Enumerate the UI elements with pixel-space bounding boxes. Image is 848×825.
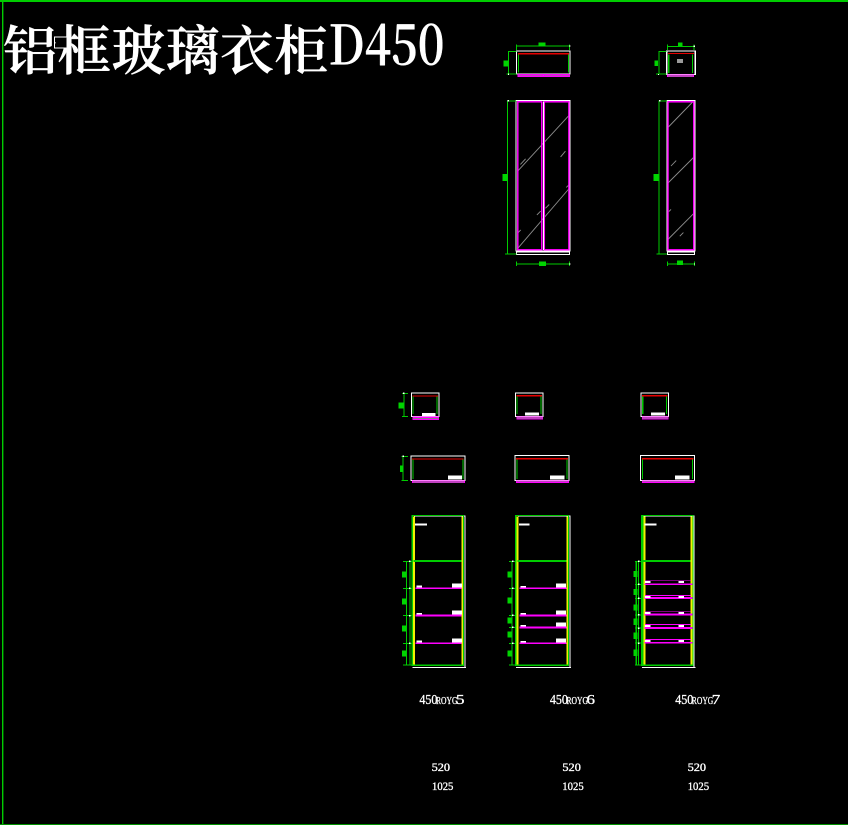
- svg-text:450: 450: [675, 692, 693, 707]
- svg-text:520: 520: [562, 762, 581, 774]
- svg-text:1025: 1025: [562, 781, 584, 793]
- svg-text:520: 520: [688, 762, 707, 774]
- svg-text:ROYG: ROYG: [692, 696, 714, 707]
- svg-text:5: 5: [456, 692, 465, 707]
- svg-text:1025: 1025: [688, 781, 710, 793]
- svg-text:450: 450: [419, 692, 437, 707]
- svg-text:6: 6: [587, 692, 596, 707]
- svg-text:ROYG: ROYG: [567, 696, 589, 707]
- svg-text:7: 7: [712, 692, 721, 707]
- svg-text:520: 520: [432, 762, 451, 774]
- svg-text:1025: 1025: [432, 781, 454, 793]
- svg-text:ROYG: ROYG: [436, 696, 458, 707]
- svg-text:450: 450: [550, 692, 568, 707]
